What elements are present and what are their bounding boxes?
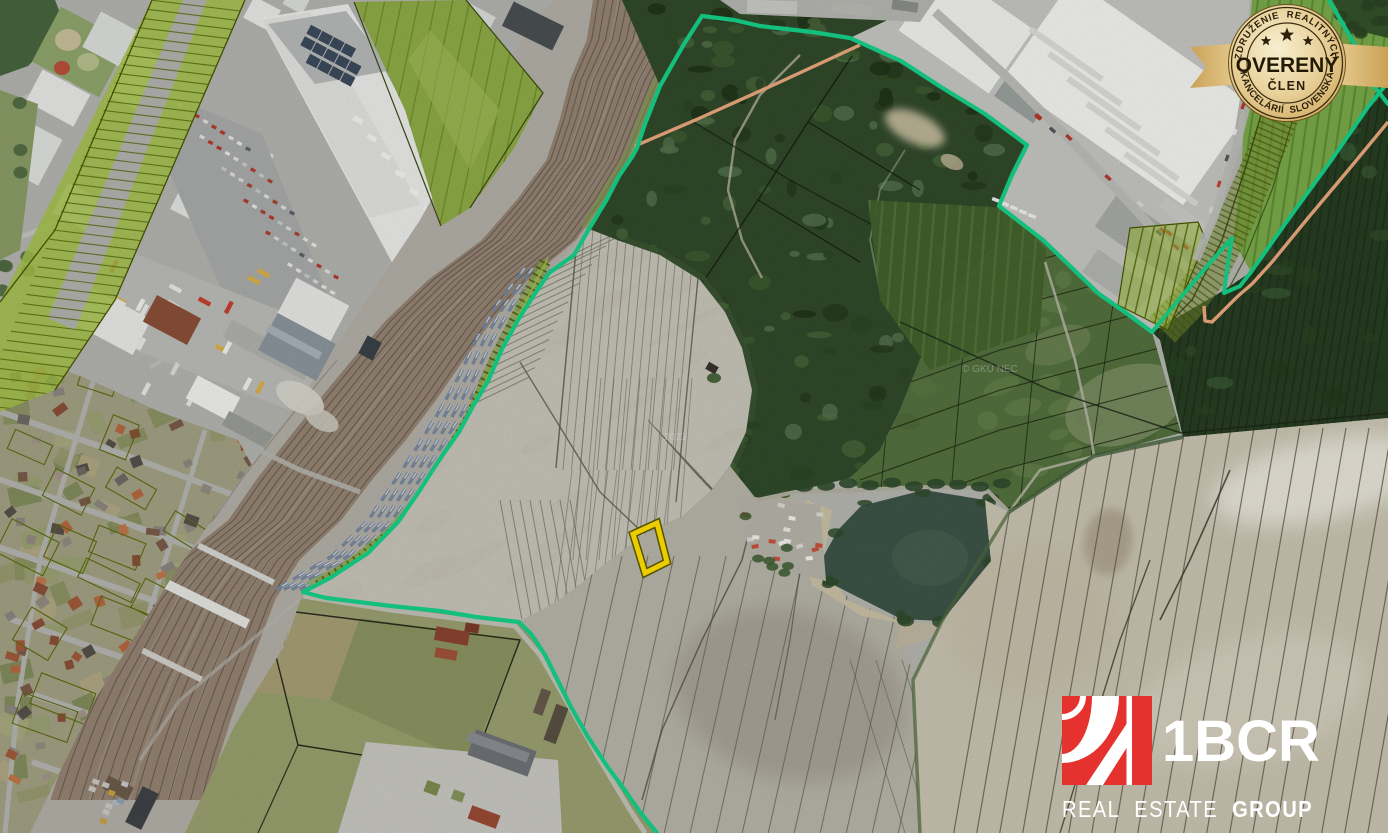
svg-text:OVERENÝ: OVERENÝ <box>1236 53 1339 77</box>
svg-text:1BCR: 1BCR <box>1162 709 1320 774</box>
svg-text:ČLEN: ČLEN <box>1268 78 1307 93</box>
svg-text:REAL ESTATE GROUP: REAL ESTATE GROUP <box>1062 796 1313 822</box>
